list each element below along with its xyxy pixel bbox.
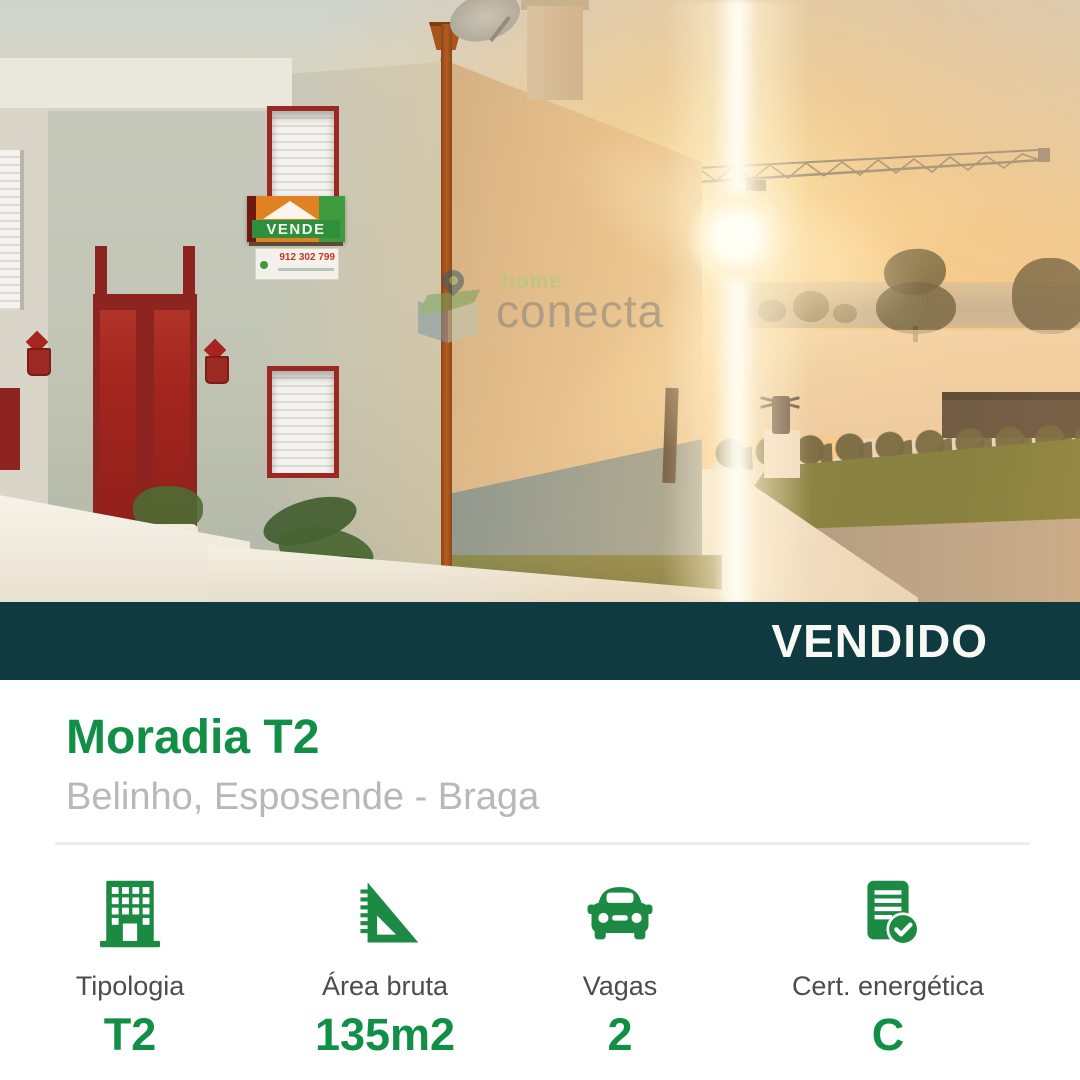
- feature-value: 135m2: [280, 1010, 490, 1060]
- certificate-check-icon: [763, 876, 1013, 952]
- feature-label: Cert. energética: [763, 970, 1013, 1002]
- feature-value: T2: [30, 1010, 230, 1060]
- listing-details: Moradia T2 Belinho, Esposende - Braga: [0, 680, 1080, 1080]
- pin-dot: [449, 276, 458, 285]
- feature-area: Área bruta 135m2: [280, 876, 490, 1060]
- agency-watermark: home conecta: [410, 270, 700, 354]
- car-icon: [525, 876, 715, 952]
- property-photo: VENDE 912 302 799: [0, 0, 1080, 602]
- feature-label: Tipologia: [30, 970, 230, 1002]
- feature-cert: Cert. energética C: [763, 876, 1013, 1060]
- feature-value: 2: [525, 1010, 715, 1060]
- watermark-brand-name: conecta: [496, 284, 664, 338]
- building-icon: [30, 876, 230, 952]
- listing-title: Moradia T2: [66, 710, 319, 765]
- feature-vagas: Vagas 2: [525, 876, 715, 1060]
- feature-tipologia: Tipologia T2: [30, 876, 230, 1060]
- status-banner: VENDIDO: [0, 602, 1080, 680]
- sun-beam: [714, 0, 758, 602]
- feature-value: C: [763, 1010, 1013, 1060]
- feature-label: Vagas: [525, 970, 715, 1002]
- status-label: VENDIDO: [771, 614, 988, 668]
- listing-location: Belinho, Esposende - Braga: [66, 776, 539, 819]
- feature-label: Área bruta: [280, 970, 490, 1002]
- divider: [55, 842, 1030, 845]
- set-square-icon: [280, 876, 490, 952]
- sun: [687, 187, 787, 287]
- listing-card: VENDE 912 302 799: [0, 0, 1080, 1080]
